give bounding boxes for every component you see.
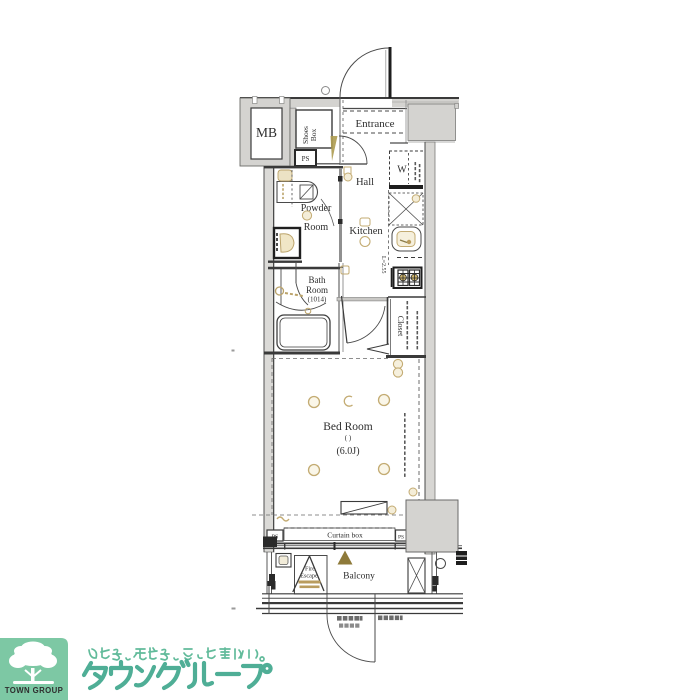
svg-text:( ): ( ) [345,434,352,442]
svg-text:(6.0J): (6.0J) [336,446,359,457]
svg-text:Kitchen: Kitchen [349,226,383,237]
svg-text:Balcony: Balcony [343,572,375,582]
svg-text:Escape: Escape [300,573,318,580]
svg-text:TOWN GROUP: TOWN GROUP [5,686,63,695]
svg-text:L=2.55: L=2.55 [380,256,386,274]
svg-text:Entrance: Entrance [355,118,394,130]
svg-text:PS: PS [398,535,404,541]
svg-text:(1014): (1014) [308,296,327,304]
svg-text:Hall: Hall [356,177,374,188]
svg-text:Bath: Bath [309,275,326,285]
svg-text:Bed Room: Bed Room [323,421,373,433]
svg-text:Fire: Fire [305,566,315,573]
svg-text:Curtain box: Curtain box [327,531,363,540]
svg-text:Room: Room [306,285,328,295]
svg-text:PS: PS [302,155,310,163]
svg-text:Room: Room [304,222,329,233]
svg-text:W: W [397,165,407,176]
svg-text:MB: MB [256,125,277,140]
svg-text:Closet: Closet [396,316,405,337]
svg-text:Box: Box [309,129,318,142]
